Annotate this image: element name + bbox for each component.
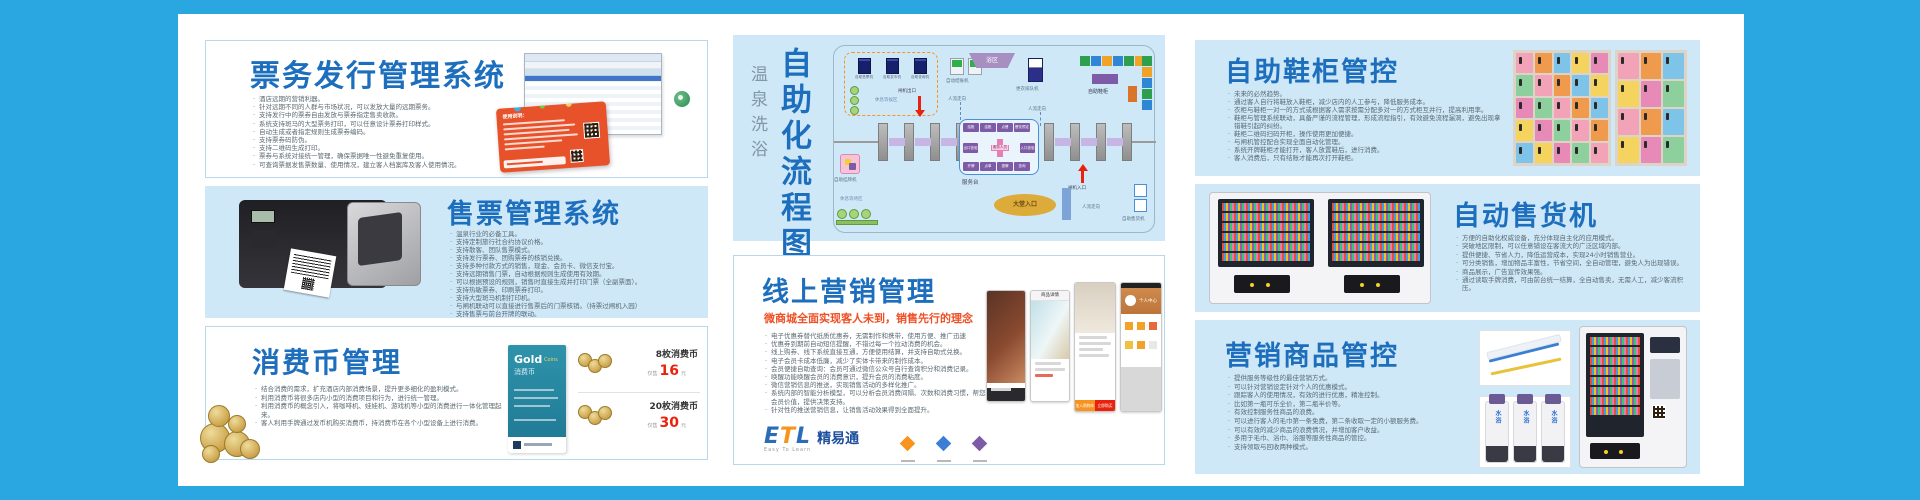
bullet: 有效控制服务性商品的浪费。 [1227, 408, 1469, 417]
bullet: 跟踪客人的使用情况，有效的进行优惠，精准控制。 [1227, 391, 1469, 400]
kiosk-machine: 自助售票机 [850, 58, 878, 80]
bullet: 电子优惠券替代纸质优惠券，无需制作和携带，使用方便、推广迅速 [764, 332, 1016, 340]
profile-title: 个人中心 [1139, 298, 1157, 304]
panel-title: 售票管理系统 [447, 192, 621, 231]
bullet: 票券与系统对接统一管理，确保票据唯一性避免重复使用。 [252, 152, 520, 160]
window-titlebar [525, 54, 661, 62]
card-brand: Gold [514, 353, 542, 366]
phone-header: 商品详情 [1031, 291, 1069, 301]
lobby-pillar [1062, 188, 1071, 220]
seats-icon [836, 204, 878, 225]
locker-photo-1 [1513, 50, 1611, 166]
kiosk-icon [858, 58, 871, 74]
desk-chip: 结账 [980, 123, 996, 132]
bullet: 自动生成或者指定规则生成票券编码。 [252, 128, 520, 136]
turnstile-pillar [1122, 123, 1132, 161]
rest-area-label: 休息等候区 [875, 97, 898, 103]
panel-subtitle: 微商城全面实现客人未到，销售先行的理念 [764, 310, 973, 326]
bottle: 水浴 [1485, 401, 1509, 463]
printer-screen [251, 210, 275, 223]
coin-offers: 8枚消费币 仅售16元 20枚消费币 仅售30元 [578, 341, 700, 445]
service-desk-label: 服务台 [962, 178, 979, 186]
tag-machine-icon [840, 154, 860, 174]
desk-chip-left: 出口查验 [963, 143, 978, 153]
seats-icon [850, 85, 859, 116]
printer-buttons [251, 230, 277, 248]
card-brand2: Coins [544, 357, 558, 363]
bullet: 支持大型斑马机制打印机。 [449, 294, 703, 302]
bullet-list: 提供服务等级性的最佳营销方式。可以针对营销设定针对个人的优惠模式。跟踪客人的使用… [1227, 374, 1469, 451]
desk-chip: 结账 [963, 123, 979, 132]
cart-button[interactable]: 加入购物车 [1075, 400, 1095, 411]
desk-chips-bottom: 开牌点单退牌查询 [963, 162, 1030, 171]
flow-subtitle: 温泉洗浴 [745, 65, 770, 165]
phone-screenshot-massage [986, 290, 1026, 402]
bullet: 电子会员卡成本低廉，减少了实体卡带来的制作成本。 [764, 357, 1016, 365]
qr-code [583, 122, 600, 139]
vending-machines-icon [1134, 184, 1147, 214]
bullet: 可以有效的减少商品的浪费情况，并增加客户收益。 [1227, 426, 1469, 435]
turnstile-pillar [1070, 123, 1080, 161]
coins-photo [578, 353, 612, 379]
gold-coins-card: Gold Coins 消费币 [508, 345, 566, 453]
bullet: 支持售票与前台开牌的联动。 [449, 310, 703, 318]
gate-in-arrow [1078, 164, 1088, 171]
bullet: 衣柜与鞋柜一对一的方式或根据客人需求按需分配多对一的方式柜互并行，提高利用率。 [1227, 106, 1505, 114]
bullet-list: 酒店远期的营销利器。针对远期不同的人群与市场状况，可以发放大量的远期票务。支持发… [252, 95, 520, 169]
bullet: 支持发行票券、团购票券的核销兑换。 [449, 254, 703, 262]
bullet: 支持远期销售门票，自动根据规则生成使用有效期。 [449, 270, 703, 278]
profile-header: 个人中心 [1121, 288, 1161, 314]
desk-chip: 点单 [980, 162, 996, 171]
phone-screenshot-profile: 个人中心 [1120, 282, 1162, 412]
etl-logo-name: 精易通 [817, 431, 859, 447]
bullet-list: 方便的自助化权威设备，充分体现自主化的应用模式。突破地区限制，可以任意铺设在客流… [1455, 234, 1693, 293]
kiosk-icon [886, 58, 899, 74]
shoe-locker-column [1142, 56, 1152, 110]
panel-flowchart: 温泉洗浴 自助化流程图 自助售票机 自助发币机 自助查询机 休息等候区 [733, 35, 1165, 241]
bullet: 系统内部的智能分析模型，可以分析会员消费间隔、次数和消费习惯，帮您精准判断会员价… [764, 389, 1016, 405]
kiosk-machine: 自助发币机 [878, 58, 906, 80]
massage-photo [987, 291, 1025, 383]
panel-title: 营销商品管控 [1225, 334, 1399, 373]
gate-out-arrow [915, 110, 925, 117]
table-header [525, 69, 661, 76]
desk-chip: 点餐 [997, 123, 1013, 132]
gate-out-label: 闸机出口 [898, 88, 916, 94]
label-printer-photo [229, 194, 434, 306]
bullet-list: 结合消费的需求，扩充酒店内部消费场景，提升更多细化的盈利模式。利用消费币将很多店… [254, 385, 504, 428]
desk-chip: 餐饮预定 [1014, 123, 1030, 132]
bullet: 通过客人自行将鞋放入鞋柜，减少店内的人工参与，降低服务成本。 [1227, 98, 1505, 106]
queue-label: 更衣排队机 [1016, 86, 1039, 92]
bullet: 唤醒功能唤醒会员的消费意识，提升会员的消费粘度。 [764, 373, 1016, 381]
bullet: 温泉行业的必备工具。 [449, 230, 703, 238]
desk-chip: 开牌 [963, 162, 979, 171]
tag-machine-label: 自助挂牌机 [834, 177, 857, 183]
desk-chips-top: 结账结账点餐餐饮预定 [963, 123, 1030, 132]
desk-chip-right: 入口查验 [1020, 143, 1035, 153]
qr-code [1652, 405, 1666, 419]
etl-logo-tagline: Easy To Learn [764, 447, 859, 453]
bullet: 可以针对营销设定针对个人的优惠模式。 [1227, 383, 1469, 392]
kiosk-machines: 自助售票机 自助发币机 自助查询机 [850, 58, 934, 80]
panel-ticket-sale: 售票管理系统 温泉行业的必备工具。支持定制旅行社合约协议价格。支持散客、团队售票… [205, 186, 708, 318]
bullet: 可以根据预设的规则，销售时直接生成并打印门票（全副票面）。 [449, 278, 703, 286]
poster-page: 票务发行管理系统 酒店远期的营销利器。针对远期不同的人群与市场状况，可以发放大量… [178, 14, 1744, 486]
panel-title: 线上营销管理 [762, 270, 936, 309]
bullet: 支持热敏票券、印刷票券打印。 [449, 286, 703, 294]
bullet: 可分类销售，增加物品丰富性，节省空间，全自动管理，避免人为出现错误。 [1455, 259, 1693, 267]
panel-title: 自助鞋柜管控 [1225, 50, 1399, 89]
bullet: 鞋柜与管理系统联动，具备严谨的流程管理，形成流程指引，有效避免流程漏洞，避免出现… [1227, 114, 1505, 130]
shoe-locker-grid [1080, 56, 1145, 66]
window-toolbar [525, 62, 661, 69]
bullet: 客人利用手牌通过发币机购买消费币，持消费币在各个小型设备上进行消费。 [254, 419, 504, 428]
panel-coins: 消费币管理 结合消费的需求，扩充酒店内部消费场景，提升更多细化的盈利模式。利用消… [205, 326, 708, 460]
self-service-machines-area: 自助售票机 自助发币机 自助查询机 休息等候区 [844, 52, 938, 116]
bullet: 系统开牌鞋柜才能打开，客人放置鞋后，进行消费。 [1227, 146, 1505, 154]
bullet: 支持领取与回收两种模式。 [1227, 443, 1469, 452]
desk-chip: 退牌 [997, 162, 1013, 171]
offer-price: 仅售30元 [647, 415, 686, 431]
queue-machine-icon [1028, 58, 1043, 82]
tall-vending-photo [1579, 326, 1687, 468]
rest-area-label: 休息等待区 [840, 196, 863, 202]
bullet: 与闸机联动可以直接进行售票后的门票核销。（持票过闸机入园） [449, 302, 703, 310]
bullet: 提供服务等级性的最佳营销方式。 [1227, 374, 1469, 383]
turnstile-pillar [1044, 123, 1054, 161]
turnstile-pillar [878, 123, 888, 161]
card-footer [504, 156, 566, 168]
bullet: 商品展示，广告宣传效果强。 [1455, 268, 1693, 276]
offer-price: 仅售16元 [647, 363, 686, 379]
bullet: 系统支持斑马的大型票务打印，可以任意设计票券打印样式。 [252, 120, 520, 128]
bullet: 与闸机管控配合实现全面自动化管理。 [1227, 138, 1505, 146]
bottle: 水浴 [1513, 401, 1537, 463]
turnstile-pillar [930, 123, 940, 161]
bullet: 提供便捷、节省人力，降低运营成本，实现24小时销售营业。 [1455, 251, 1693, 259]
bullet-list: 未来的必然趋势。通过客人自行将鞋放入鞋柜，减少店内的人工参与，降低服务成本。衣柜… [1227, 90, 1505, 162]
bullet: 可查询票据发售票数量、使用情况，建立客人档案库及客人使用情况。 [252, 161, 520, 169]
turnstile-pillar [904, 123, 914, 161]
avatar [1125, 295, 1136, 306]
shoe-counter [1092, 74, 1118, 84]
lobby-entrance: 大堂入口 [994, 194, 1056, 216]
panel-title: 票务发行管理系统 [250, 51, 506, 95]
vending-machine-photo [1209, 192, 1431, 304]
panel-goods-control: 营销商品管控 提供服务等级性的最佳营销方式。可以针对营销设定针对个人的优惠模式。… [1195, 320, 1700, 474]
bottle: 水浴 [1541, 401, 1565, 463]
bullet: 会员便捷自助查询：会员可通过微信公众号自行查询积分和消费记录。 [764, 365, 1016, 373]
coins-photo [578, 405, 612, 431]
checkout-label: 自动结账机 [946, 78, 969, 84]
panel-online-marketing: 线上营销管理 微商城全面实现客人未到，销售先行的理念 电子优惠券替代纸质优惠券，… [733, 255, 1165, 465]
bullet-list: 温泉行业的必备工具。支持定制旅行社合约协议价格。支持散客、团队售票模式。支持发行… [449, 230, 703, 318]
checkout-machine-icon [950, 58, 964, 75]
feature-icon-orange [892, 434, 923, 462]
desk-chip: 查询 [1014, 162, 1030, 171]
bullet: 线上购券、线下系统直接互通，方便使用结算，并支持自助式兑换。 [764, 348, 1016, 356]
bullet: 可以进行客人的毛巾第一条免费，第二条收取一定的小额服务费。 [1227, 417, 1469, 426]
panel-title: 自动售货机 [1453, 194, 1598, 233]
card-label: 消费币 [514, 367, 535, 377]
panel-title: 消费币管理 [252, 341, 402, 381]
bullet: 利用消费币的概念引入，将咖啡机、娃娃机、游戏机等小型的消费进行一体化管理起来。 [254, 402, 504, 419]
qr-code [570, 149, 584, 163]
locker-photo-2 [1615, 50, 1687, 166]
phone-screenshot-detail: 加入购物车 立即购买 [1074, 282, 1116, 412]
etl-logo: ETL精易通 Easy To Learn [764, 424, 859, 453]
flow-title: 自助化流程图 [771, 47, 816, 263]
bullet: 支持散客、团队售票模式。 [449, 246, 703, 254]
bullet: 支持多种付款方式的销售，现金、会员卡、微信支付宝。 [449, 262, 703, 270]
flow-direction-label: 人流走向 [948, 96, 966, 102]
bullet: 鞋柜二维码扫码开柜，操作使用更加便捷。 [1227, 130, 1505, 138]
panel-vending: 自动售货机 方便的自助化权威设备，充分体现自主化的应用模式。突破地区限制，可以任… [1195, 184, 1700, 312]
panel-ticket-issue: 票务发行管理系统 酒店远期的营销利器。针对远期不同的人群与市场状况，可以发放大量… [205, 40, 708, 178]
bath-photo [1031, 301, 1069, 359]
bullet: 突破地区限制，可以任意铺设在客流大的广泛区域内部。 [1455, 242, 1693, 250]
phone-buttons: 加入购物车 立即购买 [1075, 400, 1115, 411]
bullet: 未来的必然趋势。 [1227, 90, 1505, 98]
bullet: 针对性的推送营销信息，让销售活动效果得到全面提升。 [764, 406, 1016, 414]
card-heading: 使用说明： [502, 112, 527, 121]
feature-icon-purple [964, 434, 995, 462]
flow-direction-label: 人流走向 [1028, 106, 1046, 112]
shoe-label: 自助鞋柜 [1088, 88, 1108, 95]
printed-label [284, 248, 337, 297]
dispense-door [1234, 275, 1290, 293]
dispense-door [1590, 443, 1640, 459]
bullet: 支持票券码防伪。 [252, 136, 520, 144]
feature-icon-blue [928, 434, 959, 462]
bullet: 支持定制旅行社合约协议价格。 [449, 238, 703, 246]
flow-direction-label: 人流走向 [1082, 204, 1100, 210]
turnstile-pillar [1096, 123, 1106, 161]
ticket-card-photo: 使用说明： [496, 101, 610, 173]
offer-name: 20枚消费币 [649, 399, 698, 412]
bullet: 多用于毛巾、浴巾、浴服等服务性商品的管控。 [1227, 434, 1469, 443]
service-desk-box: 结账结账点餐餐饮预定 出口查验 入口查验 服务人员 开牌点单退牌查询 [959, 119, 1039, 175]
kiosk-icon [914, 58, 927, 74]
kiosk-machine: 自助查询机 [906, 58, 934, 80]
toothbrush-kit-photo [1479, 330, 1571, 386]
bullet: 通过读取手牌消费，可由前台统一结算，全自动售卖，无需人工，减少客流积压。 [1455, 276, 1693, 293]
bullet: 利用消费币将很多店内小型的消费项目和行为，进行统一管理。 [254, 394, 504, 403]
product-photo [1075, 283, 1115, 333]
bullet: 结合消费的需求，扩充酒店内部消费场景，提升更多细化的盈利模式。 [254, 385, 504, 394]
buy-button[interactable]: 立即购买 [1095, 400, 1115, 411]
green-leaf-logo-icon [674, 91, 690, 107]
staff-label: 服务人员 [992, 145, 1008, 150]
coin-offer: 20枚消费币 仅售30元 [578, 393, 700, 445]
panel-shoe-lockers: 自助鞋柜管控 未来的必然趋势。通过客人自行将鞋放入鞋柜，减少店内的人工参与，降低… [1195, 40, 1700, 176]
icon-grid [1121, 314, 1161, 358]
offer-name: 8枚消费币 [656, 347, 698, 360]
vending-label: 自助售货机 [1122, 216, 1145, 222]
bath-bottles-photo: 水浴 水浴 水浴 [1479, 396, 1571, 468]
phone-screenshot-product: 商品详情 [1030, 290, 1070, 402]
etl-logo-mark: ETL [764, 424, 811, 449]
bath-zone: 浴区 [969, 53, 1015, 68]
bullet: 支持发行中的票券自由发放与票券指定售卖收款。 [252, 111, 520, 119]
flow-diagram: 自助售票机 自助发币机 自助查询机 休息等候区 自动结账机 浴区 [833, 45, 1155, 233]
bullet: 客人消费后，只有结账才能再次打开鞋柜。 [1227, 154, 1505, 162]
feature-icons [892, 434, 995, 462]
poster-canvas: 票务发行管理系统 酒店远期的营销利器。针对远期不同的人群与市场状况，可以发放大量… [0, 0, 1920, 500]
shoe-pillar [1128, 86, 1137, 102]
dispense-door [1344, 275, 1400, 293]
vending-screen [1650, 337, 1680, 353]
bullet-list: 电子优惠券替代纸质优惠券，无需制作和携带，使用方便、推广迅速优惠券到期前自动短信… [764, 332, 1016, 414]
bullet: 酒店远期的营销利器。 [252, 95, 520, 103]
coin-offer: 8枚消费币 仅售16元 [578, 341, 700, 393]
vending-keypad [1650, 359, 1680, 399]
